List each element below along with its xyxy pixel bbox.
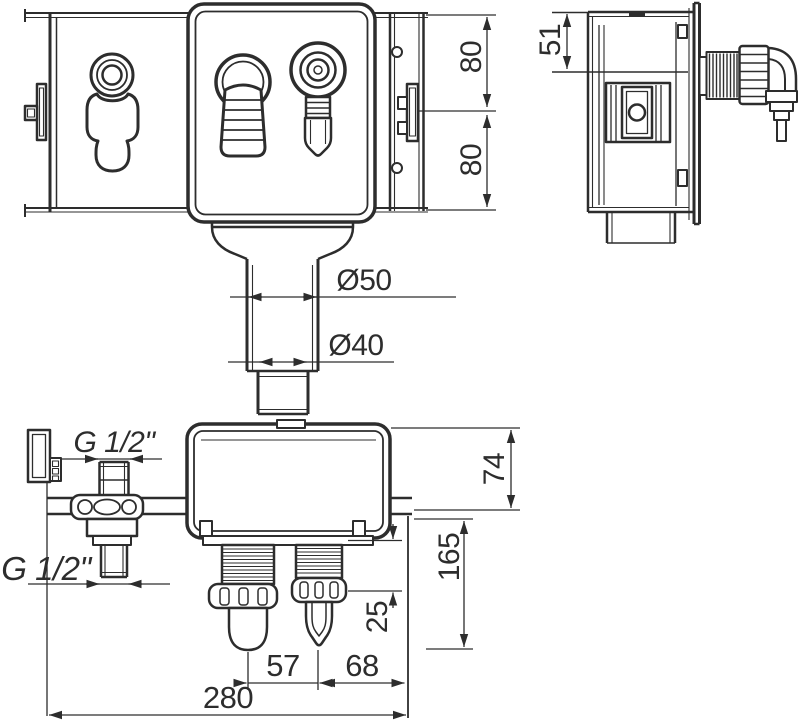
tap-connector-right: [292, 545, 346, 645]
cover-plate: [188, 4, 375, 222]
valve-left: [216, 55, 270, 156]
drain-outlet: [212, 222, 353, 414]
dim-label-g-half-lower: G 1/2": [1, 550, 92, 587]
keyhole-cutout: [87, 94, 138, 171]
cover-front-view: [188, 4, 375, 222]
dim-label-51: 51: [534, 24, 567, 56]
right-side-view: [552, 3, 797, 243]
technical-drawing: Ø50 Ø40 G 1/2" G 1/2" 80 80 51 74 165 25…: [0, 0, 800, 723]
side-profile-view: [390, 14, 424, 211]
dim-label-25: 25: [361, 601, 394, 633]
dim-label-80-bottom: 80: [455, 144, 488, 176]
screw-hole-top: [392, 47, 402, 57]
technical-drawing-page: Ø50 Ø40 G 1/2" G 1/2" 80 80 51 74 165 25…: [0, 0, 800, 723]
dim-label-165: 165: [433, 533, 466, 582]
wall-bracket-left: [37, 84, 46, 140]
dim-label-280: 280: [203, 680, 253, 715]
dim-label-dia40: Ø40: [328, 329, 383, 362]
top-tab: [629, 12, 645, 18]
screw-hole-bottom: [392, 163, 402, 173]
tap-connector-left: [209, 545, 277, 650]
dim-label-74: 74: [478, 453, 511, 485]
hose-outlet: [700, 46, 798, 141]
dim-label-80-top: 80: [455, 41, 488, 73]
dim-label-dia50: Ø50: [336, 264, 391, 297]
dim-label-57: 57: [266, 648, 299, 683]
dim-label-68: 68: [345, 648, 378, 683]
dim-label-g-half-upper: G 1/2": [73, 426, 156, 459]
